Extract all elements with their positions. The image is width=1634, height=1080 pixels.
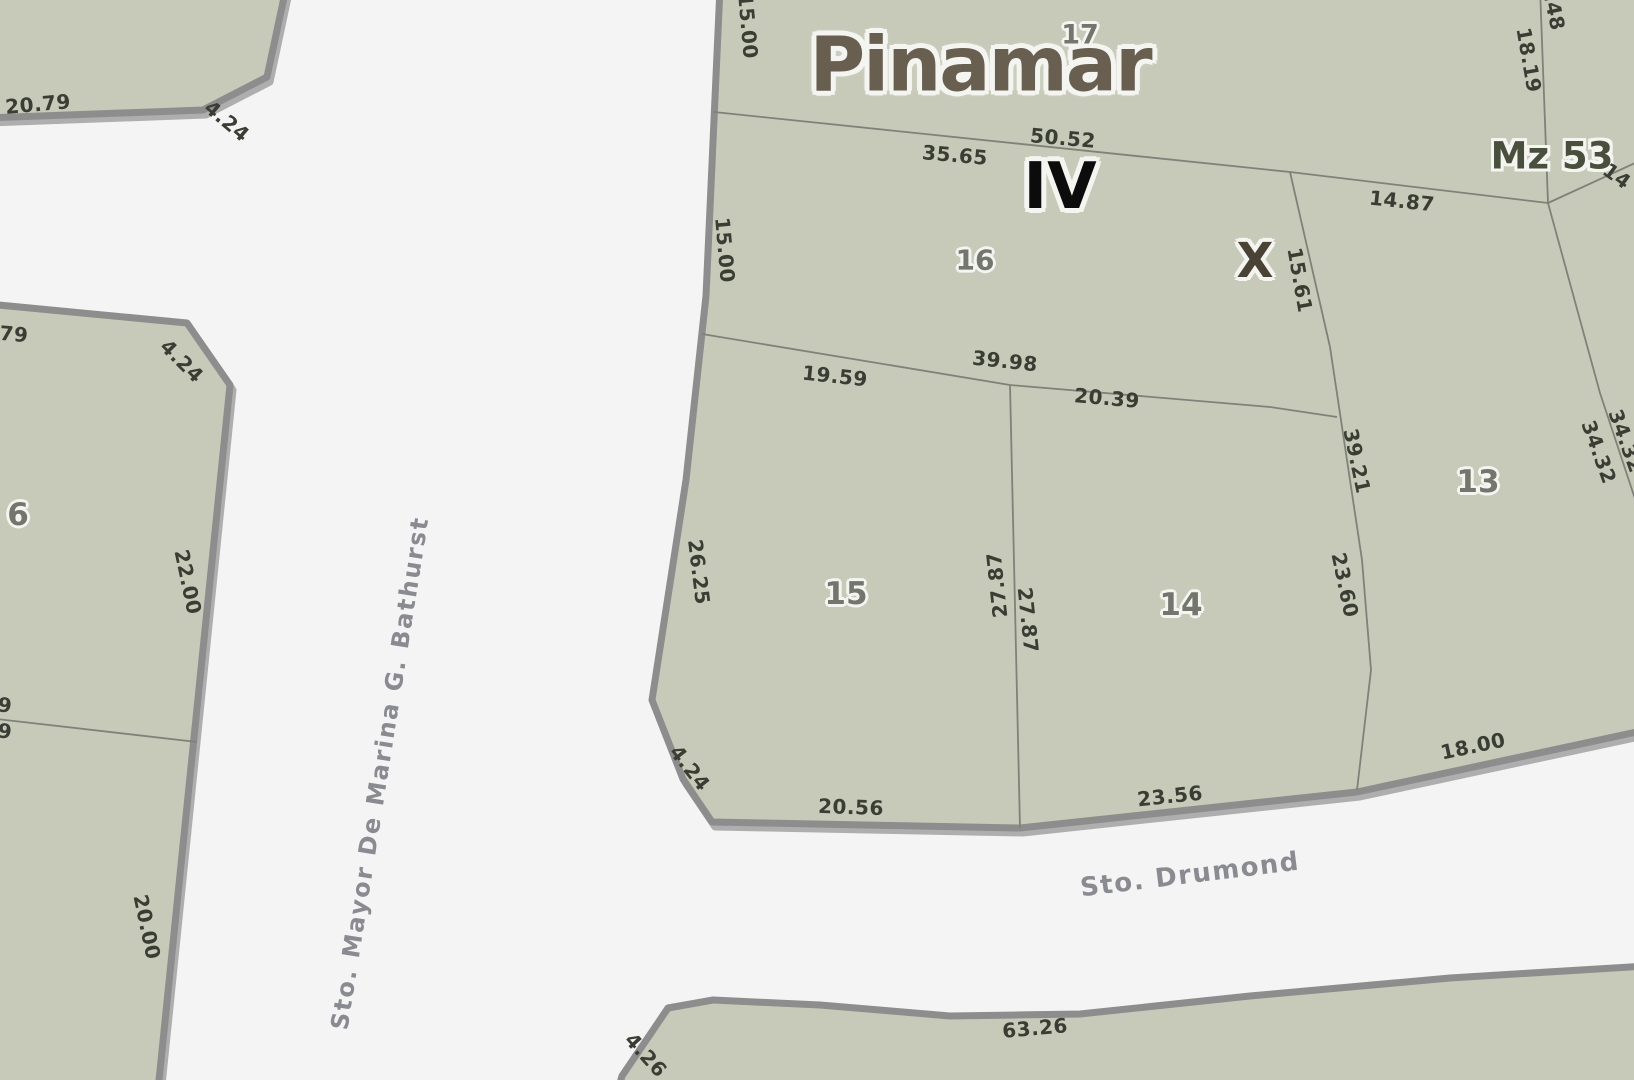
map-graphics <box>0 0 1634 1080</box>
manzana-label: Mz 53 <box>1491 135 1614 178</box>
block-bottom[interactable] <box>618 966 1634 1080</box>
map-title: Pinamar <box>809 20 1150 109</box>
dimension-label: 9 <box>0 718 13 743</box>
city-blocks <box>0 0 1634 1080</box>
parcel-number-17: 17 <box>1061 20 1099 51</box>
dimension-label: 9 <box>0 692 13 717</box>
block-pinamar-mz53[interactable] <box>652 0 1634 828</box>
parcel-number-15: 15 <box>824 576 867 612</box>
zone-label: IV <box>1023 150 1096 224</box>
block-left-parcel-6[interactable] <box>0 304 230 1080</box>
dimension-label: 15.00 <box>733 0 763 60</box>
cadastral-map-canvas: Pinamar IV X Mz 53 Sto. Drumond Sto. May… <box>0 0 1634 1080</box>
dimension-label: 20.56 <box>818 794 885 820</box>
parcel-number-14: 14 <box>1159 587 1202 623</box>
dimension-label: 79 <box>0 321 29 347</box>
parcel-number-16: 16 <box>956 244 995 277</box>
location-x-marker: X <box>1236 233 1273 289</box>
parcel-number-13: 13 <box>1456 464 1499 500</box>
parcel-number-6: 6 <box>7 497 29 533</box>
